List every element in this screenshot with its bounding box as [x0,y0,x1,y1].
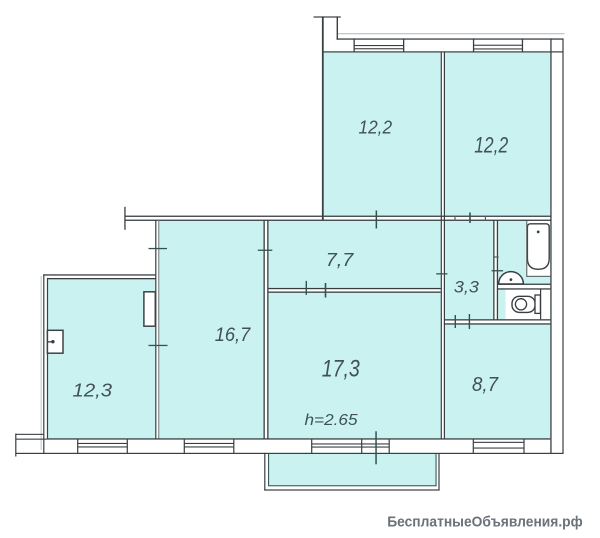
svg-text:БесплатныеОбъявления.рф: БесплатныеОбъявления.рф [387,514,583,531]
svg-text:12,3: 12,3 [73,381,113,401]
svg-text:8,7: 8,7 [472,374,499,396]
svg-text:12,2: 12,2 [359,117,393,137]
svg-text:17,3: 17,3 [322,356,361,383]
svg-text:16,7: 16,7 [215,324,252,346]
svg-text:7,7: 7,7 [326,250,355,270]
svg-text:3,3: 3,3 [454,279,480,297]
svg-text:h=2.65: h=2.65 [305,412,358,429]
svg-text:12,2: 12,2 [474,133,508,158]
